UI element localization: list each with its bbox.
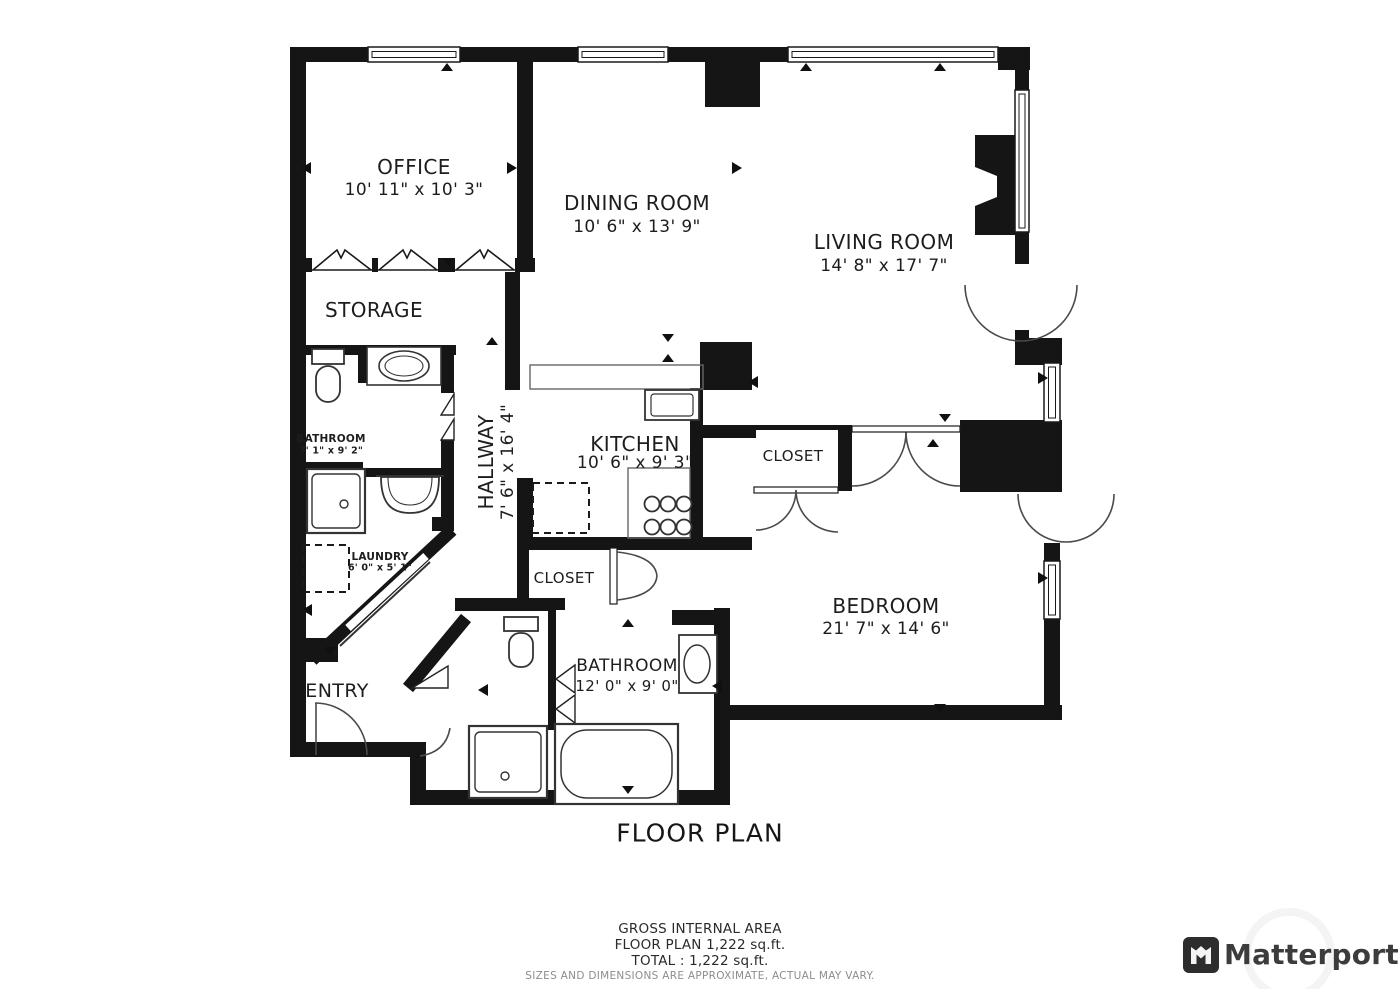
office-label: OFFICE: [377, 155, 451, 179]
disclaimer-text: SIZES AND DIMENSIONS ARE APPROXIMATE, AC…: [525, 970, 874, 982]
toilet2-bowl: [509, 633, 533, 667]
laundry-unit: [303, 545, 349, 592]
hallway-dims: 7' 6" x 16' 4": [498, 404, 518, 520]
total-area-line: TOTAL : 1,222 sq.ft.: [632, 953, 769, 969]
living-room-dims: 14' 8" x 17' 7": [820, 256, 948, 276]
kitchen-counter: [530, 365, 703, 389]
laundry-label: LAUNDRY: [351, 551, 408, 563]
kitchen-dims: 10' 6" x 9' 3": [577, 453, 693, 473]
dining-room-label: DINING ROOM: [564, 191, 710, 215]
gross-area-line: GROSS INTERNAL AREA: [618, 921, 781, 937]
bedroom-dims: 21' 7" x 14' 6": [822, 619, 950, 639]
living-room-label: LIVING ROOM: [814, 230, 954, 254]
plan-title: FLOOR PLAN: [616, 819, 783, 848]
toilet-bowl: [316, 366, 340, 402]
closet-hall-label: CLOSET: [534, 569, 595, 587]
stove: [645, 497, 692, 535]
bathroom-lower-label: BATHROOM: [576, 656, 678, 676]
hallway-label-group: HALLWAY 7' 6" x 16' 4": [474, 404, 518, 520]
entry-label: ENTRY: [305, 680, 368, 702]
floorplan-area-line: FLOOR PLAN 1,222 sq.ft.: [615, 937, 786, 953]
dining-room-dims: 10' 6" x 13' 9": [573, 217, 701, 237]
matterport-logo-icon: [1183, 937, 1219, 973]
bathroom-upper-label: BATHROOM: [296, 433, 365, 445]
bathroom-upper-dims: 7' 1" x 9' 2": [299, 446, 363, 457]
office-dims: 10' 11" x 10' 3": [345, 180, 484, 200]
toilet-tank: [312, 349, 344, 364]
storage-label: STORAGE: [325, 298, 423, 322]
floor-plan-page: OFFICE 10' 11" x 10' 3" DINING ROOM 10' …: [0, 0, 1400, 989]
bathroom-lower-dims: 12' 0" x 9' 0": [575, 677, 678, 695]
bifold-doors: [312, 250, 515, 272]
bedroom-label: BEDROOM: [832, 594, 939, 618]
windows: [368, 47, 1060, 619]
laundry-dims: 6' 0" x 5' 1": [348, 563, 412, 574]
matterport-logo-text: Matterport: [1224, 936, 1399, 974]
hallway-label: HALLWAY: [474, 404, 498, 520]
closet-bedroom-label: CLOSET: [763, 447, 824, 465]
fridge: [533, 483, 589, 533]
sink2-basin: [684, 645, 710, 683]
half-sink: [381, 477, 439, 513]
toilet2-tank: [504, 617, 538, 631]
